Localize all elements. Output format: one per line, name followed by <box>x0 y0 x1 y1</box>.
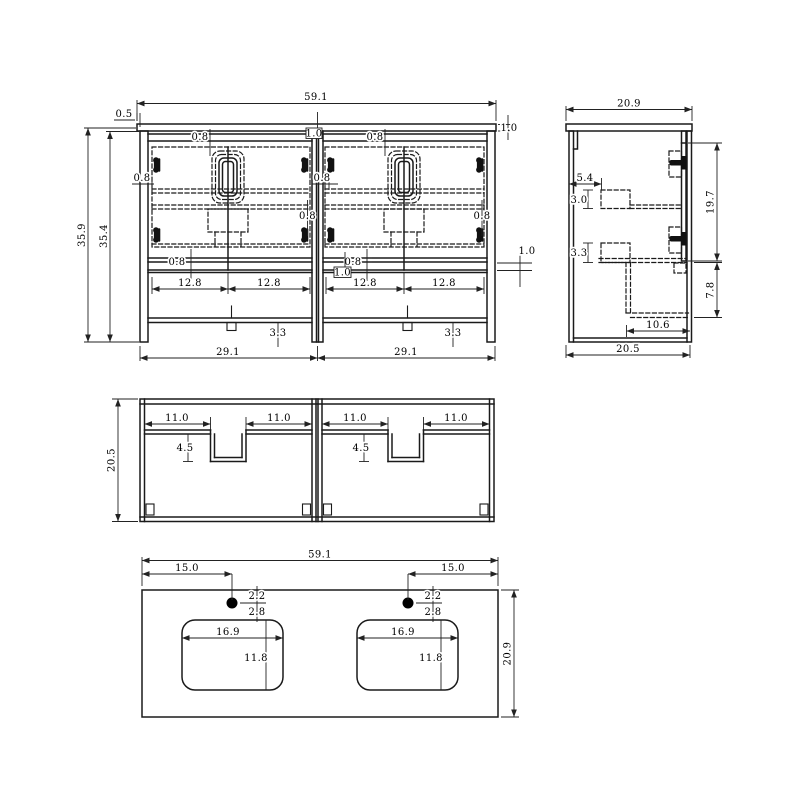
side-cabinet-body <box>566 124 692 342</box>
dim-side-door-height: 19.7 <box>706 190 717 214</box>
vanity-technical-drawing: 59.1 0.5 35.9 35.4 0.8 0.8 1.0 1.0 <box>0 0 800 800</box>
dim-side-back-offset: 5.4 <box>576 173 593 184</box>
dim-front-center-stile: 1.0 <box>305 129 322 140</box>
dim-front-reveal-side-left: 0.8 <box>133 173 150 184</box>
dim-front-top-thickness: 1.0 <box>500 123 517 134</box>
countertop-body <box>142 590 498 717</box>
dim-faucet-offset-right: 15.0 <box>441 563 465 574</box>
dim-front-unit-width-left: 29.1 <box>216 347 240 358</box>
dim-sink-width-right: 16.9 <box>391 627 415 638</box>
dim-front-door-width-1: 12.8 <box>178 278 202 289</box>
dim-plan-notch-depth-right: 4.5 <box>352 443 369 454</box>
dim-front-overall-width: 59.1 <box>304 92 328 103</box>
front-right-foot-mark <box>403 323 412 331</box>
plan-left-notch <box>211 430 247 462</box>
dim-front-reveal-top-left: 0.8 <box>191 132 208 143</box>
dim-counter-depth: 20.9 <box>503 642 514 666</box>
dim-plan-side-panel-3: 11.0 <box>343 413 367 424</box>
dim-front-overhang: 0.5 <box>115 109 132 120</box>
dim-side-base-depth: 20.5 <box>616 344 640 355</box>
side-hinges <box>669 156 686 246</box>
dim-front-reveal-bottom-right: 0.8 <box>344 257 361 268</box>
dim-faucet-to-edge-left: 2.2 <box>248 591 265 602</box>
drawing-page: 59.1 0.5 35.9 35.4 0.8 0.8 1.0 1.0 <box>0 0 800 800</box>
dim-plan-side-panel-2: 11.0 <box>267 413 291 424</box>
front-cabinet-body <box>137 124 496 342</box>
dim-front-shelf-height-right: 3.3 <box>444 328 461 339</box>
dim-plan-notch-depth-left: 4.5 <box>176 443 193 454</box>
front-left-leg <box>140 131 148 342</box>
dim-sink-depth-right: 11.8 <box>419 653 443 664</box>
front-center-stile <box>312 131 323 342</box>
dim-side-shelf-depth: 10.6 <box>646 320 670 331</box>
dim-side-shelf-opening: 7.8 <box>706 281 717 298</box>
dim-faucet-to-sink-right: 2.8 <box>424 607 441 618</box>
dim-front-door-width-4: 12.8 <box>432 278 456 289</box>
dim-front-rail-thickness: 1.0 <box>334 268 351 279</box>
dim-faucet-to-sink-left: 2.8 <box>248 607 265 618</box>
side-front-leg <box>687 131 692 342</box>
front-dimensions: 59.1 0.5 35.9 35.4 0.8 0.8 1.0 1.0 <box>77 92 536 361</box>
dim-front-total-height: 35.9 <box>77 223 88 247</box>
plan-view: 20.5 11.0 11.0 11.0 11.0 4.5 4.5 <box>107 399 495 522</box>
dim-side-top-depth: 20.9 <box>617 99 641 110</box>
plan-cabinet-body <box>140 399 494 522</box>
side-countertop <box>566 124 692 131</box>
dim-front-reveal-top-right: 0.8 <box>366 132 383 143</box>
dim-faucet-to-edge-right: 2.2 <box>424 591 441 602</box>
front-view: 59.1 0.5 35.9 35.4 0.8 0.8 1.0 1.0 <box>77 92 536 361</box>
countertop-outline <box>142 590 498 717</box>
dim-front-unit-width-right: 29.1 <box>394 347 418 358</box>
dim-front-shelf-height-left: 3.3 <box>269 328 286 339</box>
plan-dimensions: 20.5 11.0 11.0 11.0 11.0 4.5 4.5 <box>107 399 490 522</box>
dim-side-upper-bracket: 3.0 <box>570 195 587 206</box>
plan-right-notch <box>388 430 424 462</box>
dim-plan-side-panel-4: 11.0 <box>444 413 468 424</box>
dim-faucet-offset-left: 15.0 <box>175 563 199 574</box>
dim-front-reveal-side-right: 0.8 <box>313 173 330 184</box>
dim-front-door-width-2: 12.8 <box>257 278 281 289</box>
dim-front-door-width-3: 12.8 <box>353 278 377 289</box>
dim-plan-side-panel-1: 11.0 <box>165 413 189 424</box>
side-dimensions: 20.9 5.4 3.0 3.3 19.7 7.8 10.6 <box>566 99 722 359</box>
dim-front-reveal-mid-right: 0.8 <box>473 211 490 222</box>
dim-front-reveal-bottom-left: 0.8 <box>168 257 185 268</box>
dim-front-reveal-mid-center: 0.8 <box>299 211 316 222</box>
dim-sink-width-left: 16.9 <box>216 627 240 638</box>
countertop-view: 59.1 15.0 15.0 2.2 2.8 2.2 2.8 16.9 16.9 <box>142 550 519 718</box>
side-back-leg <box>569 131 574 342</box>
front-right-leg <box>487 131 495 342</box>
dim-side-lower-bracket: 3.3 <box>570 248 587 259</box>
dim-front-rail-right: 1.0 <box>518 246 535 257</box>
dim-front-carcass-height: 35.4 <box>99 224 110 248</box>
front-left-foot-mark <box>227 323 236 331</box>
side-view: 20.9 5.4 3.0 3.3 19.7 7.8 10.6 <box>566 99 722 359</box>
dim-plan-depth: 20.5 <box>107 448 118 472</box>
dim-sink-depth-left: 11.8 <box>244 653 268 664</box>
countertop-dimensions: 59.1 15.0 15.0 2.2 2.8 2.2 2.8 16.9 16.9 <box>142 550 519 718</box>
dim-counter-width: 59.1 <box>308 550 332 561</box>
